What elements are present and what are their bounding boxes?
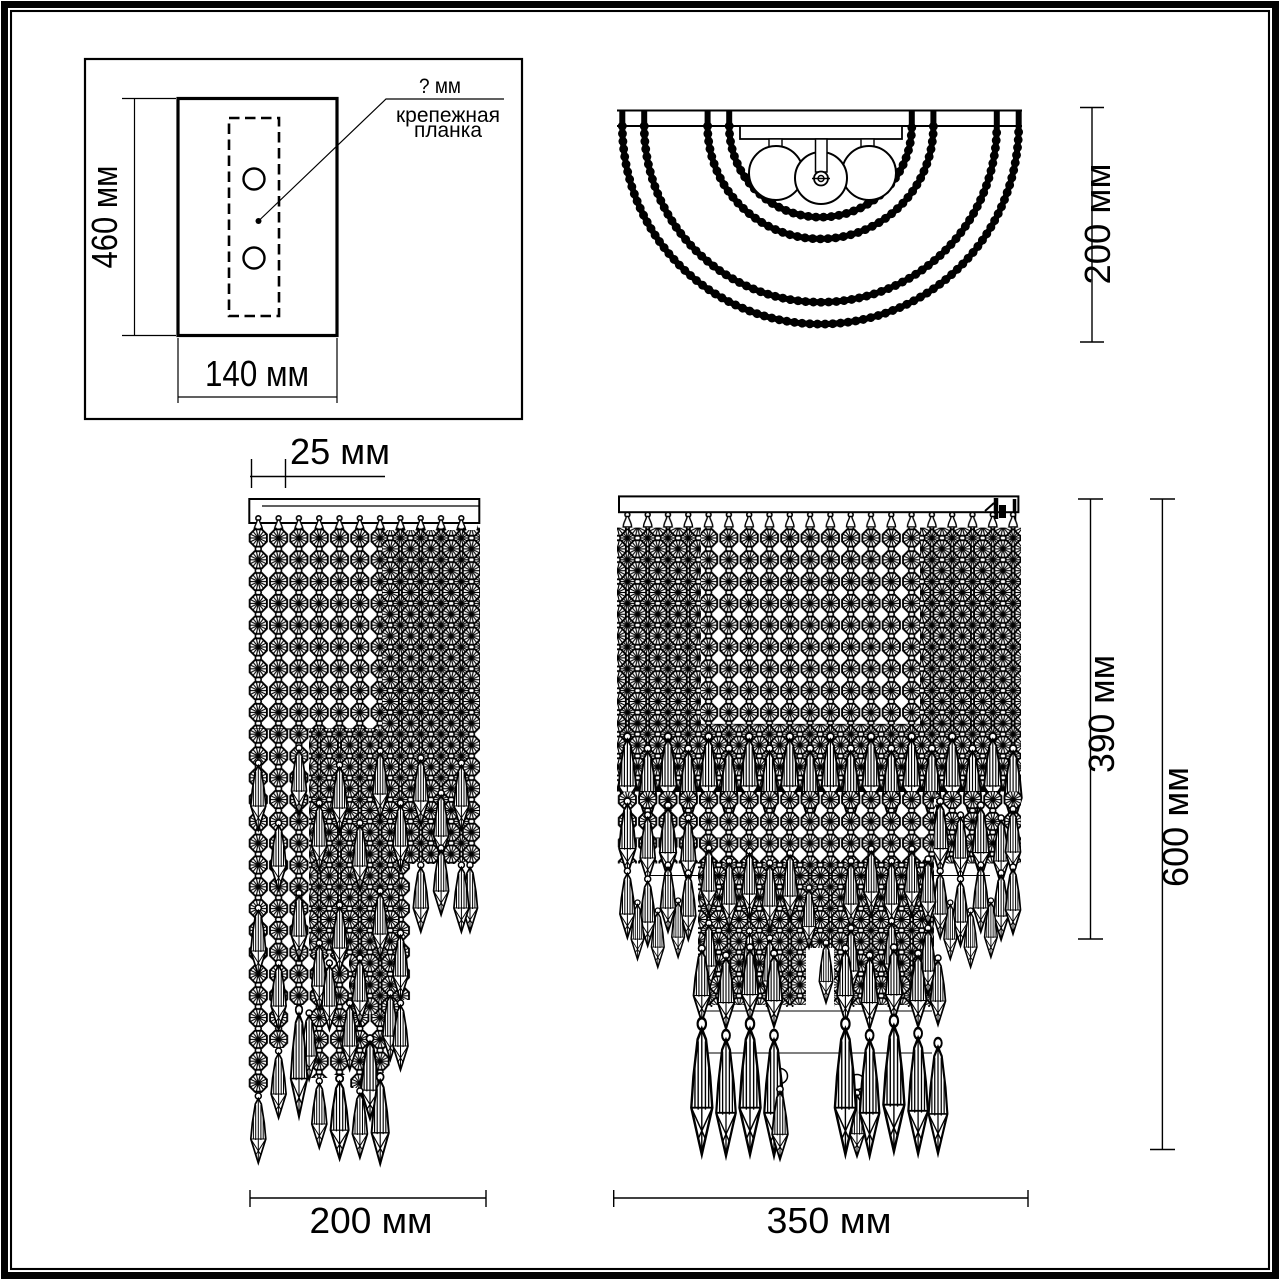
svg-text:200 мм: 200 мм bbox=[1077, 164, 1118, 285]
svg-text:планка: планка bbox=[414, 119, 482, 142]
svg-text:140 мм: 140 мм bbox=[205, 353, 309, 394]
svg-text:460 мм: 460 мм bbox=[84, 166, 125, 269]
svg-text:200 мм: 200 мм bbox=[310, 1200, 433, 1241]
svg-text:350 мм: 350 мм bbox=[767, 1200, 892, 1241]
svg-text:600 мм: 600 мм bbox=[1155, 767, 1196, 887]
svg-text:390 мм: 390 мм bbox=[1081, 655, 1122, 773]
svg-text:25 мм: 25 мм bbox=[290, 431, 390, 472]
svg-text:? мм: ? мм bbox=[419, 75, 461, 98]
